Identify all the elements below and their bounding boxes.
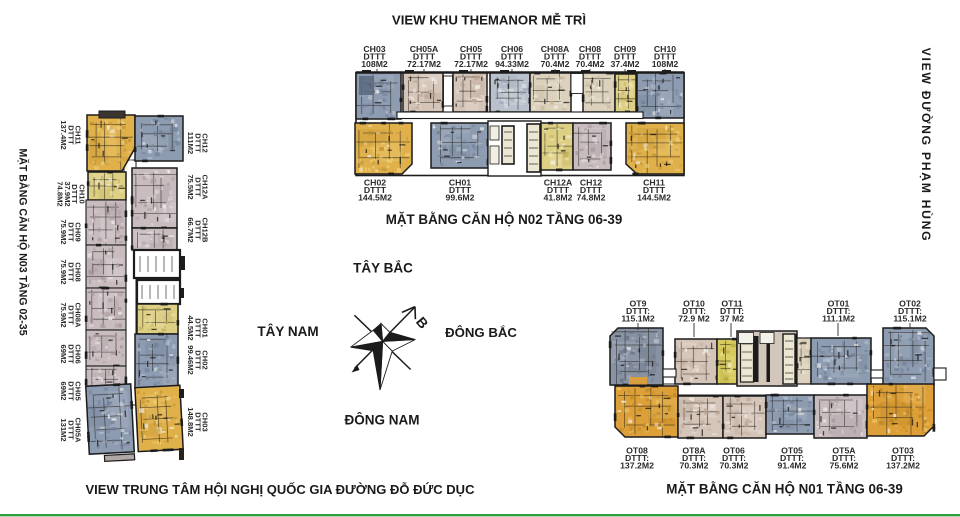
svg-text:CH09DTTT75.9M2: CH09DTTT75.9M2 xyxy=(59,219,83,244)
svg-text:MẶT BẰNG CĂN HỘ N03 TẦNG 02-35: MẶT BẰNG CĂN HỘ N03 TẦNG 02-35 xyxy=(17,148,30,335)
svg-text:CH08DTTT75.9M2: CH08DTTT75.9M2 xyxy=(59,259,83,284)
svg-text:VIEW TRUNG TÂM HỘI NGHỊ QUỐC G: VIEW TRUNG TÂM HỘI NGHỊ QUỐC GIA ĐƯỜNG Đ… xyxy=(86,482,476,497)
svg-text:ĐÔNG NAM: ĐÔNG NAM xyxy=(345,413,420,428)
svg-text:CH01DTTT99.6M2: CH01DTTT99.6M2 xyxy=(446,178,475,203)
svg-text:OT05DTTT:91.4M2: OT05DTTT:91.4M2 xyxy=(778,445,807,470)
svg-text:CH08ADTTT70.4M2: CH08ADTTT70.4M2 xyxy=(541,44,570,69)
svg-text:CH03DTTT108M2: CH03DTTT108M2 xyxy=(361,44,388,69)
svg-text:TÂY BẮC: TÂY BẮC xyxy=(353,261,413,276)
svg-text:OT06DTTT:70.3M2: OT06DTTT:70.3M2 xyxy=(720,445,749,470)
svg-text:ĐÔNG BẮC: ĐÔNG BẮC xyxy=(445,325,517,340)
svg-text:VIEW KHU THEMANOR MỄ TRÌ: VIEW KHU THEMANOR MỄ TRÌ xyxy=(392,13,586,28)
svg-text:OT11DTTT:37 M2: OT11DTTT:37 M2 xyxy=(720,298,744,323)
svg-text:CH12BDTTT66.7M2: CH12BDTTT66.7M2 xyxy=(186,217,210,243)
svg-text:OT5ADTTT:75.6M2: OT5ADTTT:75.6M2 xyxy=(830,445,859,470)
svg-text:CH09DTTT37.4M2: CH09DTTT37.4M2 xyxy=(611,44,640,69)
svg-text:CH05ADTTT131M2: CH05ADTTT131M2 xyxy=(59,418,83,443)
svg-text:CH10DTTT108M2: CH10DTTT108M2 xyxy=(652,44,679,69)
svg-text:OT8ADTTT:70.3M2: OT8ADTTT:70.3M2 xyxy=(680,445,709,470)
svg-text:CH08DTTT70.4M2: CH08DTTT70.4M2 xyxy=(576,44,605,69)
svg-text:CH12DTTT74.8M2: CH12DTTT74.8M2 xyxy=(577,178,606,203)
svg-text:VIEW ĐƯỜNG PHẠM HÙNG: VIEW ĐƯỜNG PHẠM HÙNG xyxy=(919,48,934,243)
svg-text:CH08ADTTT75.9M2: CH08ADTTT75.9M2 xyxy=(59,302,83,328)
svg-text:MẶT BẰNG CĂN HỘ N01 TẦNG 06-39: MẶT BẰNG CĂN HỘ N01 TẦNG 06-39 xyxy=(666,482,903,497)
svg-text:CH10DTTT37.9M274.8M2: CH10DTTT37.9M274.8M2 xyxy=(56,181,87,206)
svg-text:TÂY NAM: TÂY NAM xyxy=(257,324,318,339)
svg-text:CH06DTTT69M2: CH06DTTT69M2 xyxy=(59,344,83,364)
svg-text:CH05DTTT69M2: CH05DTTT69M2 xyxy=(59,381,83,401)
svg-text:CH01DTTT44.5M2: CH01DTTT44.5M2 xyxy=(186,315,210,340)
svg-text:MẶT BẰNG CĂN HỘ N02 TẦNG 06-39: MẶT BẰNG CĂN HỘ N02 TẦNG 06-39 xyxy=(386,212,623,227)
svg-text:CH12ADTTT41.8M2: CH12ADTTT41.8M2 xyxy=(544,178,573,203)
svg-text:CH12DTTT111M2: CH12DTTT111M2 xyxy=(186,132,210,154)
svg-text:CH12ADTTT75.5M2: CH12ADTTT75.5M2 xyxy=(186,174,210,200)
